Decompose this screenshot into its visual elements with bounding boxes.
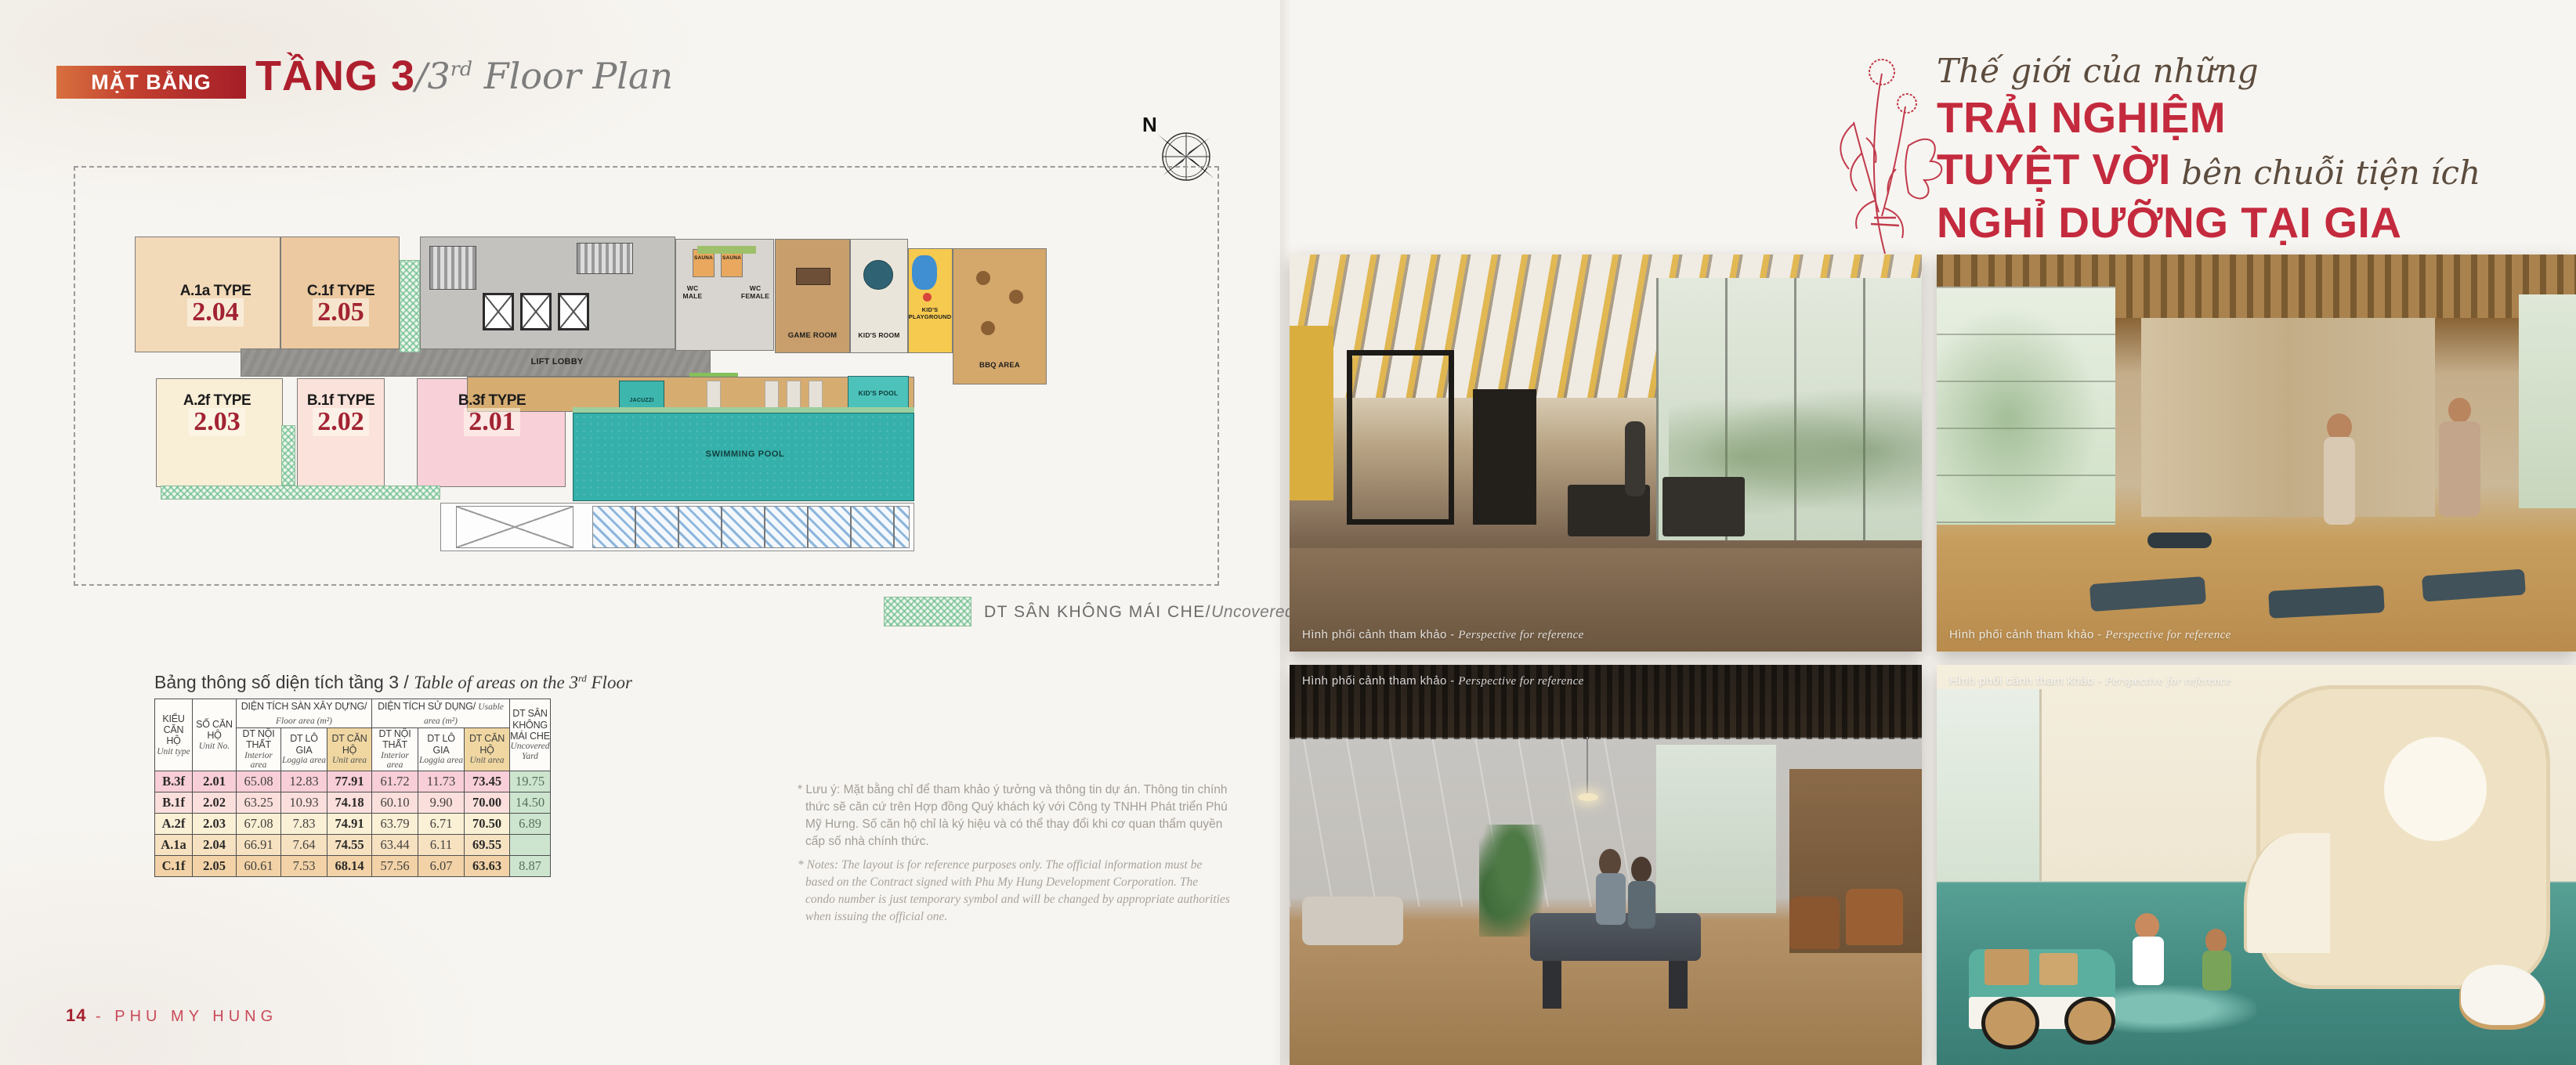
unit-label-b3f: B.3f TYPE 2.01 <box>429 393 555 436</box>
cell: 11.73 <box>418 771 465 792</box>
plan-stair <box>577 243 633 274</box>
cell-unit-type: A.2f <box>155 814 193 835</box>
unit-number: 2.04 <box>187 298 244 327</box>
cell-unit-area: 73.45 <box>465 771 510 792</box>
plan-canopy-xbox <box>456 506 573 548</box>
svg-text:N: N <box>1142 113 1157 136</box>
photo-kids-playroom-render: Hình phối cảnh tham khảo - Perspective f… <box>1937 665 2576 1065</box>
unit-label-a1a: A.1a TYPE 2.04 <box>160 283 271 327</box>
cell-unit-area: 69.55 <box>465 835 510 856</box>
cell-unit-type: B.3f <box>155 771 193 792</box>
photo-caption: Hình phối cảnh tham khảo - Perspective f… <box>1949 628 2231 642</box>
cell: 6.71 <box>418 814 465 835</box>
plan-lounger <box>765 381 779 409</box>
plan-lift <box>558 293 589 330</box>
cell-unit-area: 74.91 <box>327 814 372 835</box>
sub-header-loggia: DT LÔ GIALoggia area <box>281 728 327 771</box>
unit-type: A.2f TYPE <box>161 393 273 408</box>
unit-number: 2.05 <box>313 298 369 327</box>
plan-lounger <box>787 381 801 409</box>
plan-bbq-table <box>1009 290 1023 304</box>
plan-label-wc-female: WC FEMALE <box>738 285 772 301</box>
plan-label-lift-lobby: LIFT LOBBY <box>514 357 600 367</box>
plan-canopy-glass <box>592 506 910 548</box>
plan-jacuzzi <box>619 381 664 409</box>
cell-unit-area: 63.63 <box>465 856 510 877</box>
table-title-sup: rd <box>578 673 587 684</box>
footer-separator: - <box>86 1008 114 1025</box>
photo-lounge-render: Hình phối cảnh tham khảo - Perspective f… <box>1290 665 1922 1065</box>
page-number: 14 <box>66 1005 86 1025</box>
table-row: A.2f 2.03 67.08 7.83 74.91 63.79 6.71 70… <box>155 814 551 835</box>
unit-label-c1f: C.1f TYPE 2.05 <box>285 283 396 327</box>
right-title-red-1: TRẢI NGHIỆM <box>1937 92 2226 143</box>
note-vietnamese: * Lưu ý: Mặt bằng chỉ để tham khảo ý tưở… <box>798 782 1230 850</box>
cell-unit-no: 2.05 <box>193 856 237 877</box>
subtitle-sup: rd <box>450 58 472 81</box>
page-footer: 14 - PHU MY HUNG <box>66 1005 277 1026</box>
unit-number: 2.02 <box>313 408 369 436</box>
badge-label: MẶT BẰNG <box>91 70 211 95</box>
right-title-red-3: NGHỈ DƯỠNG TẠI GIA <box>1937 197 2401 247</box>
plan-yard-hatch <box>161 486 440 500</box>
cell-unit-area: 74.18 <box>327 792 372 814</box>
cell-unit-type: A.1a <box>155 835 193 856</box>
page-subtitle: /3rd Floor Plan <box>415 55 673 97</box>
cell: 9.90 <box>418 792 465 814</box>
cell: 6.11 <box>418 835 465 856</box>
photo-yoga-render: Hình phối cảnh tham khảo - Perspective f… <box>1937 255 2576 652</box>
table-row: B.1f 2.02 63.25 10.93 74.18 60.10 9.90 7… <box>155 792 551 814</box>
plan-label-swimming-pool: SWIMMING POOL <box>671 449 819 460</box>
plan-label-bbq: BBQ AREA <box>968 362 1031 370</box>
table-row: B.3f 2.01 65.08 12.83 77.91 61.72 11.73 … <box>155 771 551 792</box>
disclaimer-notes: * Lưu ý: Mặt bằng chỉ để tham khảo ý tưở… <box>798 782 1230 932</box>
photo-gym-render: Hình phối cảnh tham khảo - Perspective f… <box>1290 255 1922 652</box>
table-title-vn: Bảng thông số diện tích tầng 3 / <box>154 672 414 692</box>
table-row: A.1a 2.04 66.91 7.64 74.55 63.44 6.11 69… <box>155 835 551 856</box>
cell: 57.56 <box>372 856 418 877</box>
right-title-script-1: Thế giới của những <box>1937 52 2259 90</box>
plan-kids-room-rug <box>863 260 893 290</box>
plan-label-playground: KID'S PLAYGROUND <box>906 307 953 320</box>
cell: 66.91 <box>237 835 281 856</box>
cell-unit-no: 2.02 <box>193 792 237 814</box>
plan-lounger <box>809 381 823 409</box>
cell: 12.83 <box>281 771 327 792</box>
col-header-unit-no: SỐ CĂN HỘUnit No. <box>193 699 237 771</box>
table-title-en: Table of areas on the 3 <box>414 673 578 692</box>
cell-yard: 8.87 <box>510 856 551 877</box>
legend-label-vn: DT SÂN KHÔNG MÁI CHE/ <box>984 603 1211 621</box>
plan-corridor <box>241 348 711 377</box>
photo-caption: Hình phối cảnh tham khảo - Perspective f… <box>1949 674 2231 688</box>
floor-plan: LIFT LOBBY SAUNA SAUNA WC MALE WC FEMALE… <box>74 166 1219 586</box>
flower-sketch-icon <box>1830 52 1948 260</box>
cell: 63.79 <box>372 814 418 835</box>
unit-type: C.1f TYPE <box>285 283 396 298</box>
plan-lift <box>483 293 514 330</box>
cell: 61.72 <box>372 771 418 792</box>
col-header-unit-type: KIỂU CĂN HỘUnit type <box>155 699 193 771</box>
table-row: C.1f 2.05 60.61 7.53 68.14 57.56 6.07 63… <box>155 856 551 877</box>
sub-header-loggia: DT LÔ GIALoggia area <box>418 728 465 771</box>
plan-bbq-table <box>976 271 990 285</box>
plan-pool-edge <box>573 407 914 413</box>
cell: 63.25 <box>237 792 281 814</box>
plan-label-sauna: SAUNA <box>719 255 744 261</box>
unit-number: 2.01 <box>464 408 520 436</box>
cell-yard: 19.75 <box>510 771 551 792</box>
cell: 65.08 <box>237 771 281 792</box>
subtitle-rest: Floor Plan <box>472 55 673 97</box>
plan-lift <box>520 293 552 330</box>
cell-unit-area: 70.50 <box>465 814 510 835</box>
unit-number: 2.03 <box>189 408 245 436</box>
photo-caption: Hình phối cảnh tham khảo - Perspective f… <box>1302 674 1584 688</box>
footer-brand: PHU MY HUNG <box>114 1008 277 1025</box>
plan-stair <box>429 246 476 290</box>
cell: 67.08 <box>237 814 281 835</box>
cell-unit-type: B.1f <box>155 792 193 814</box>
group-header-usable-area: DIỆN TÍCH SỬ DỤNG/ Usable area (m²) <box>372 699 510 728</box>
brochure-spread: MẶT BẰNG TẦNG 3 /3rd Floor Plan N <box>0 0 2576 1065</box>
cell-yard <box>510 835 551 856</box>
plan-label-wc-male: WC MALE <box>677 285 708 301</box>
plan-label-kids-room: KID'S ROOM <box>850 332 908 340</box>
cell-yard: 14.50 <box>510 792 551 814</box>
unit-type: B.3f TYPE <box>429 393 555 408</box>
cell: 60.61 <box>237 856 281 877</box>
note-english: * Notes: The layout is for reference pur… <box>798 857 1230 926</box>
cell-unit-area: 70.00 <box>465 792 510 814</box>
sub-header-interior: DT NỘI THẤTInterior area <box>372 728 418 771</box>
right-title-line-3: TUYỆT VỜI bên chuỗi tiện ích <box>1937 144 2480 194</box>
cell-unit-type: C.1f <box>155 856 193 877</box>
cell-unit-area: 74.55 <box>327 835 372 856</box>
plan-label-game-room: GAME ROOM <box>775 332 850 341</box>
sub-header-unit-area: DT CĂN HỘUnit area <box>465 728 510 771</box>
areas-table: KIỂU CĂN HỘUnit type SỐ CĂN HỘUnit No. D… <box>154 699 551 877</box>
cell: 6.07 <box>418 856 465 877</box>
cell-unit-no: 2.01 <box>193 771 237 792</box>
sub-header-unit-area: DT CĂN HỘUnit area <box>327 728 372 771</box>
plan-planter <box>697 246 756 254</box>
unit-type: A.1a TYPE <box>160 283 271 298</box>
cell-unit-area: 68.14 <box>327 856 372 877</box>
plan-yard-hatch <box>281 425 295 486</box>
table-title: Bảng thông số diện tích tầng 3 / Table o… <box>154 672 632 693</box>
cell: 7.83 <box>281 814 327 835</box>
sub-header-interior: DT NỘI THẤTInterior area <box>237 728 281 771</box>
unit-label-a2f: A.2f TYPE 2.03 <box>161 393 273 436</box>
cell-yard: 6.89 <box>510 814 551 835</box>
cell: 60.10 <box>372 792 418 814</box>
table-title-en-post: Floor <box>587 673 632 692</box>
plan-label-sauna: SAUNA <box>691 255 716 261</box>
cell: 7.64 <box>281 835 327 856</box>
plan-yard-hatch <box>400 260 420 352</box>
cell-unit-no: 2.03 <box>193 814 237 835</box>
unit-type: B.1f TYPE <box>297 393 385 408</box>
legend-swatch-uncovered-yard <box>884 597 971 626</box>
section-badge: MẶT BẰNG <box>56 66 246 99</box>
group-header-floor-area: DIỆN TÍCH SÀN XÂY DỰNG/ Floor area (m²) <box>237 699 372 728</box>
plan-billiard-table <box>796 268 830 285</box>
right-title-red-2: TUYỆT VỜI <box>1937 145 2171 193</box>
subtitle-slash: /3 <box>415 55 450 97</box>
plan-playground-pad <box>912 255 937 290</box>
plan-label-jacuzzi: JACUZZI <box>619 398 664 404</box>
plan-label-kids-pool: KID'S POOL <box>848 390 909 398</box>
right-title-script-2: bên chuỗi tiện ích <box>2171 153 2480 192</box>
cell: 7.53 <box>281 856 327 877</box>
plan-playground-dot <box>923 293 932 301</box>
unit-label-b1f: B.1f TYPE 2.02 <box>297 393 385 436</box>
cell-unit-no: 2.04 <box>193 835 237 856</box>
col-header-uncovered-yard: DT SÂN KHÔNG MÁI CHEUncovered Yard <box>510 699 551 771</box>
cell: 10.93 <box>281 792 327 814</box>
page-title: TẦNG 3 <box>255 52 415 100</box>
cell-unit-area: 77.91 <box>327 771 372 792</box>
plan-bbq-table <box>981 321 995 335</box>
plan-lounger <box>707 381 721 409</box>
photo-caption: Hình phối cảnh tham khảo - Perspective f… <box>1302 628 1584 642</box>
cell: 63.44 <box>372 835 418 856</box>
